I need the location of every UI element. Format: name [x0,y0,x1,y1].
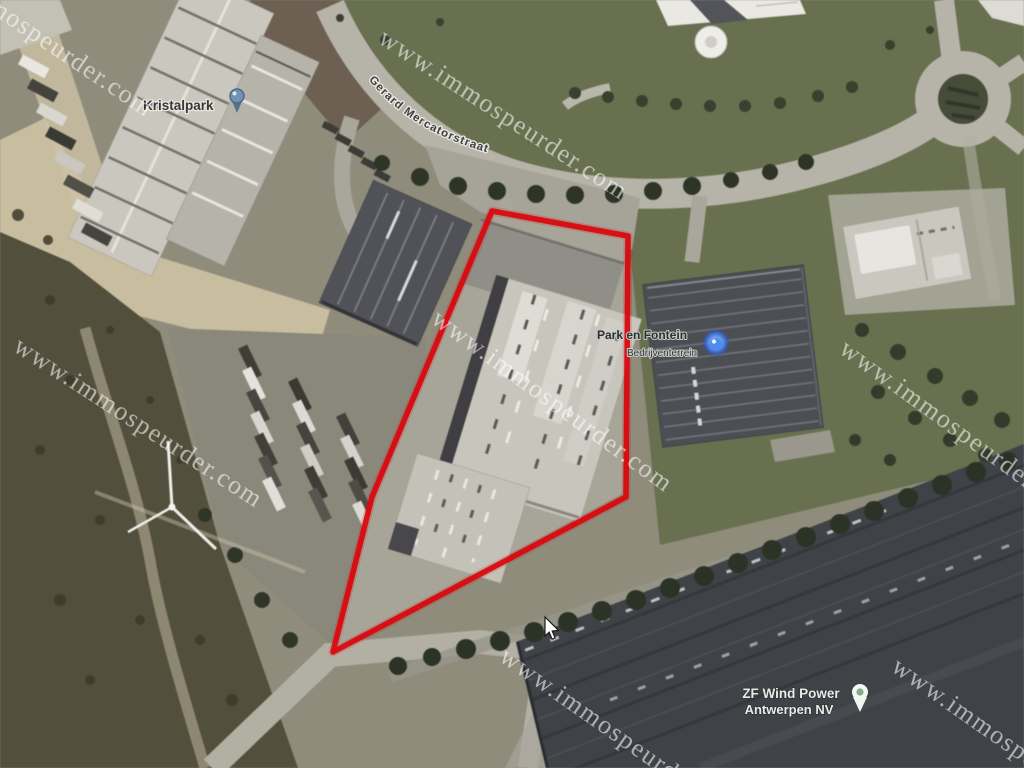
map-canvas[interactable]: Gerard Mercatorstraat Kristalpark Park e… [0,0,1024,768]
road-exit-north [944,0,952,62]
park-en-fontein-label-line2[interactable]: Bedrijventerrein [627,348,697,359]
selected-place-marker-icon[interactable] [702,330,730,358]
zf-label-line2[interactable]: Antwerpen NV [745,702,834,717]
park-en-fontein-label-line1[interactable]: Park en Fontein [597,328,687,342]
driveway-1 [692,196,700,262]
zf-label-line1[interactable]: ZF Wind Power [742,686,840,701]
